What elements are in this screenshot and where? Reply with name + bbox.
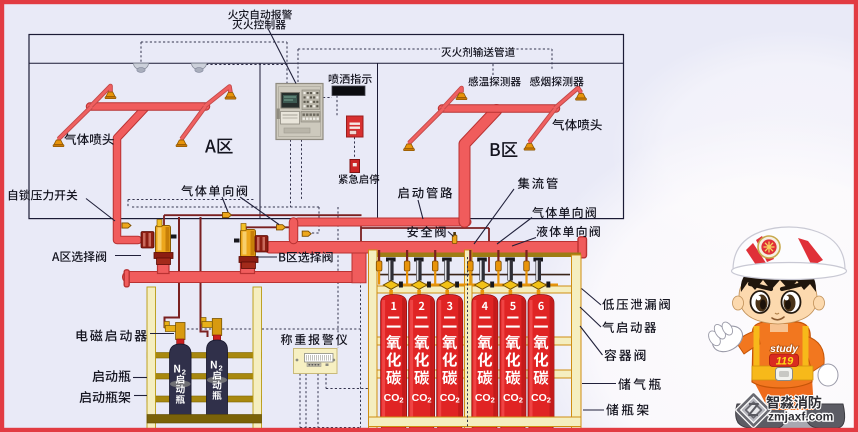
svg-text:zmjaxf.com: zmjaxf.com xyxy=(768,410,833,424)
svg-text:2: 2 xyxy=(182,368,186,377)
svg-text:2: 2 xyxy=(219,364,223,373)
svg-text:study: study xyxy=(770,343,799,355)
svg-text:119: 119 xyxy=(776,356,794,368)
